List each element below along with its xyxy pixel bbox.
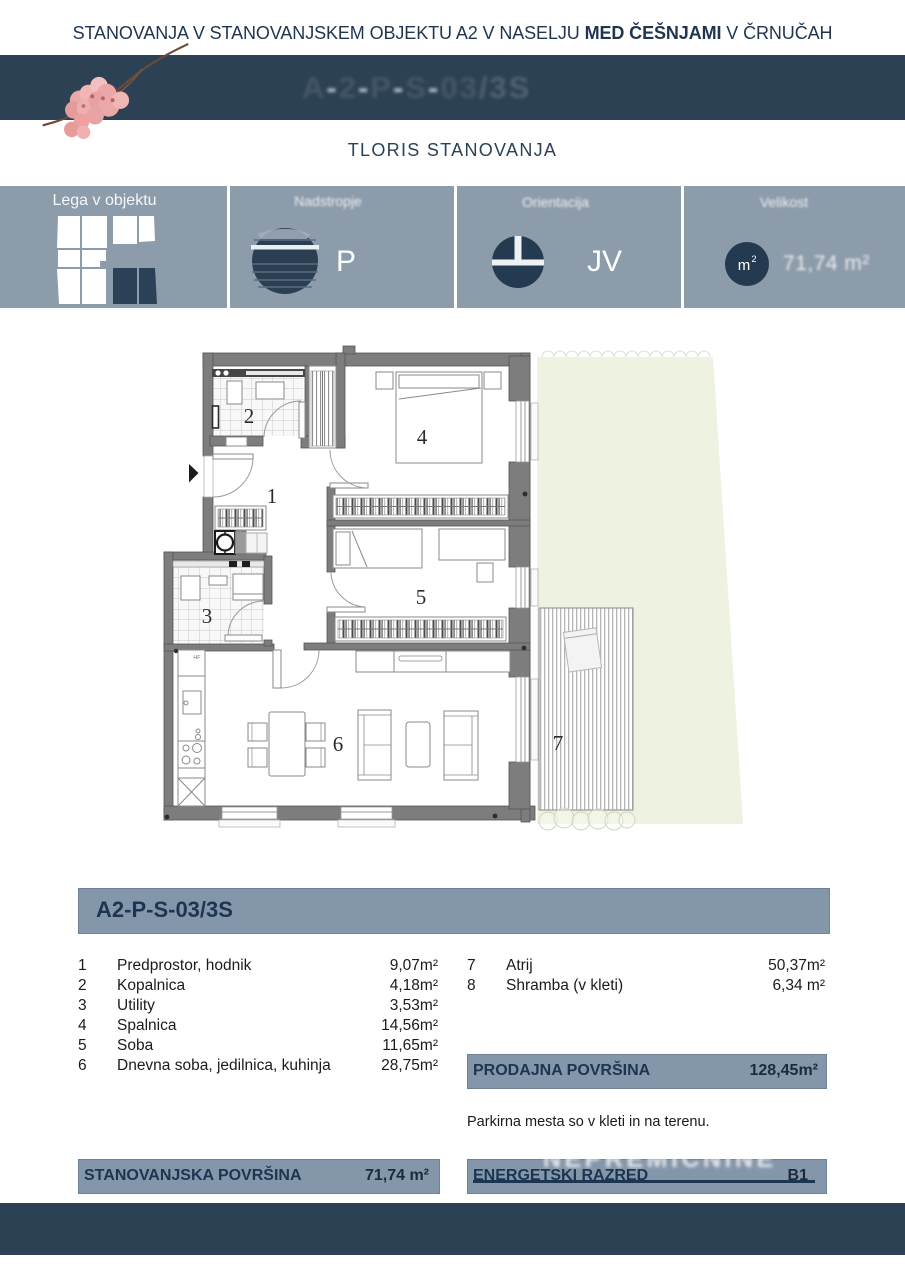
svg-text:m: m: [738, 257, 751, 274]
svg-text:7: 7: [553, 731, 564, 755]
svg-text:4: 4: [417, 425, 428, 449]
svg-text:HF: HF: [193, 655, 201, 661]
svg-text:1: 1: [267, 484, 278, 508]
svg-text:2: 2: [752, 254, 757, 264]
svg-text:3: 3: [202, 604, 213, 628]
svg-text:5: 5: [416, 585, 427, 609]
svg-text:2: 2: [244, 404, 255, 428]
svg-text:6: 6: [333, 732, 344, 756]
